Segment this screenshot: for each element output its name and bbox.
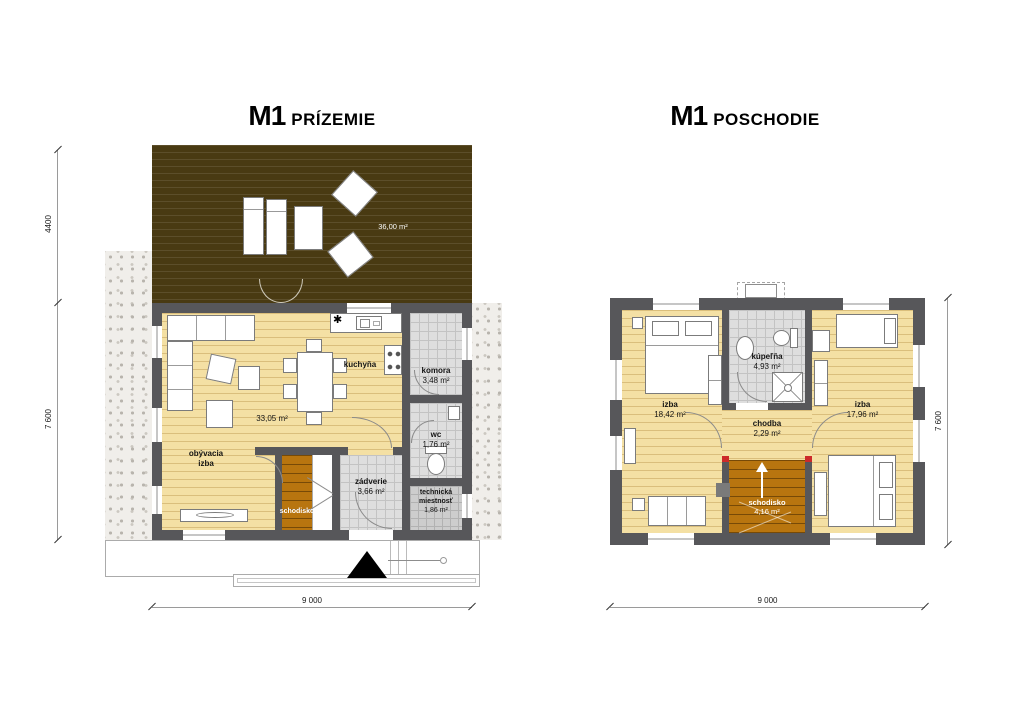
stone-patio-right	[472, 303, 502, 540]
shower-drain	[784, 384, 792, 392]
dimension-label-house-depth: 7 600	[934, 401, 946, 441]
pillow	[879, 494, 893, 520]
room-label-kuchyna: kuchyňa	[330, 360, 390, 370]
dining-chair	[283, 358, 297, 373]
interior-wall	[722, 310, 729, 410]
window	[648, 533, 694, 545]
toilet-icon	[773, 330, 790, 346]
dining-chair	[333, 384, 347, 399]
dimension-line-vertical	[57, 150, 58, 540]
pillow	[685, 321, 712, 336]
sink-drainer	[373, 321, 380, 326]
side-table	[812, 330, 830, 352]
bench	[814, 472, 827, 516]
staircase-winder	[312, 455, 332, 530]
sofa	[167, 341, 193, 411]
room-label-schodisko: schodisko	[276, 508, 318, 517]
armchair	[238, 366, 260, 390]
interior-wall	[805, 460, 812, 533]
entrance-arrow	[347, 551, 387, 578]
dimension-line-horizontal	[610, 607, 925, 608]
terrace-table	[294, 206, 323, 250]
entrance-mat-inner	[237, 578, 476, 583]
room-area-obyvacia: 33,05 m²	[240, 414, 304, 424]
dimension-tick	[54, 299, 62, 307]
shower	[772, 372, 803, 402]
room-label-izba-right: izba 17,96 m²	[825, 400, 900, 420]
chimney	[745, 284, 777, 298]
plan-floor-label: PRÍZEMIE	[291, 110, 375, 129]
up-arrow-stem	[761, 472, 763, 498]
pillow	[652, 321, 679, 336]
sink-basin	[360, 319, 370, 328]
interior-wall	[410, 395, 462, 403]
lounger	[243, 197, 264, 255]
dimension-tick	[54, 146, 62, 154]
pillow	[879, 462, 893, 488]
bedside-table	[632, 317, 643, 329]
washbasin	[448, 406, 460, 420]
pillow	[884, 318, 896, 344]
plan-model-label: M1	[670, 100, 707, 131]
dining-chair	[306, 412, 322, 425]
window	[830, 533, 876, 545]
side-table	[632, 498, 645, 511]
room-label-zadverie: zádverie 3,66 m²	[340, 477, 402, 497]
dimension-label-house-depth: 7 600	[44, 399, 56, 439]
window	[462, 328, 472, 360]
room-label-kupelna: kúpeľňa 4,93 m²	[729, 352, 805, 372]
plan-floor-label: POSCHODIE	[713, 110, 820, 129]
window	[653, 298, 699, 310]
toilet-tank	[790, 328, 798, 348]
staircase	[282, 455, 312, 530]
window	[347, 303, 391, 313]
blanket-line	[873, 456, 874, 526]
entrance-door-opening	[349, 530, 393, 540]
sofa	[167, 315, 255, 341]
interior-wall	[393, 447, 402, 455]
interior-wall	[410, 478, 462, 486]
window	[610, 436, 622, 470]
window	[913, 420, 925, 462]
stone-patio-left	[105, 251, 152, 540]
pointer-circle	[440, 557, 447, 564]
dimension-tick	[54, 536, 62, 544]
lounger	[266, 199, 287, 255]
up-arrow-head	[756, 462, 768, 472]
double-bed	[828, 455, 896, 527]
coffee-table	[206, 400, 233, 428]
window	[152, 486, 162, 514]
plan-title-poschodie: M1POSCHODIE	[620, 100, 870, 132]
interior-wall	[255, 447, 348, 455]
dimension-label-terrace-depth: 4400	[44, 204, 56, 244]
dimension-tick	[944, 541, 952, 549]
window	[610, 360, 622, 400]
interior-wall	[722, 403, 736, 410]
window	[183, 530, 225, 540]
bench	[648, 496, 706, 526]
armchair	[206, 354, 237, 385]
dining-chair	[306, 339, 322, 352]
flue-box	[716, 483, 730, 497]
toilet-icon	[427, 453, 445, 475]
room-label-technicka: technická miestnosť 1,86 m²	[409, 489, 463, 515]
window	[913, 345, 925, 387]
stair-marker	[805, 456, 812, 462]
interior-wall	[805, 310, 812, 410]
window	[462, 494, 472, 518]
dimension-line-vertical	[947, 298, 948, 545]
room-label-chodba: chodba 2,29 m²	[722, 419, 812, 439]
dining-chair	[283, 384, 297, 399]
dining-table	[297, 352, 333, 412]
room-label-izba-left: izba 18,42 m²	[635, 400, 705, 420]
room-label-komora: komora 3,48 m²	[410, 366, 462, 386]
room-label-wc: wc 1,76 m²	[410, 430, 462, 450]
plan-title-prizemie: M1PRÍZEMIE	[167, 100, 457, 132]
entrance-platform	[105, 540, 480, 577]
dimension-label-width: 9 000	[152, 596, 472, 605]
stair-marker	[722, 456, 729, 462]
single-bed	[836, 314, 898, 348]
desk	[624, 428, 636, 464]
terrace-area-label: 36,00 m²	[355, 222, 431, 231]
window	[152, 326, 162, 358]
wardrobe	[708, 355, 722, 405]
step-line	[398, 541, 399, 576]
interior-wall	[768, 403, 812, 410]
kitchen-marker: ✱	[333, 313, 347, 329]
window	[843, 298, 889, 310]
kitchen-sink	[356, 316, 382, 330]
dimension-line-horizontal	[152, 607, 472, 608]
step-line	[406, 541, 407, 576]
pointer-line	[388, 560, 440, 561]
dimension-tick	[944, 294, 952, 302]
dimension-label-width: 9 000	[610, 596, 925, 605]
step-line	[390, 541, 391, 576]
floorplan-sheet: M1PRÍZEMIE 36,00 m² schodisko ✱	[0, 0, 1024, 724]
room-label-obyvacia: obývacia izba	[176, 449, 236, 469]
plan-model-label: M1	[248, 100, 285, 131]
tv	[196, 512, 234, 518]
window	[152, 408, 162, 442]
staircase	[729, 460, 805, 533]
room-label-schodisko-2: schodisko 4,16 m²	[729, 498, 805, 517]
blanket-line	[646, 345, 718, 346]
